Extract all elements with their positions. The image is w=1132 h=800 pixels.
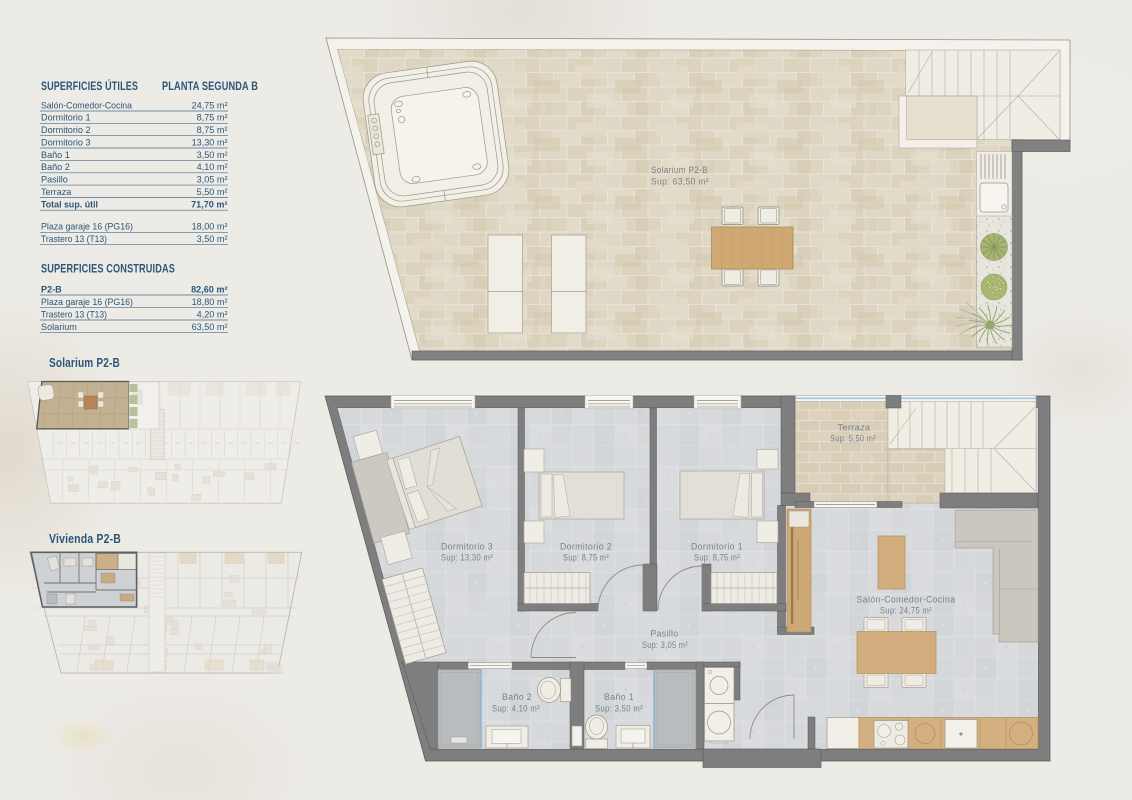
svg-text:Sup: 3,50 m²: Sup: 3,50 m² <box>595 704 643 714</box>
svg-text:4,10 m²: 4,10 m² <box>197 162 228 172</box>
svg-text:Sup: 5,50 m²: Sup: 5,50 m² <box>830 434 876 444</box>
svg-text:Dormitorio 1: Dormitorio 1 <box>691 542 743 552</box>
svg-text:63,50 m²: 63,50 m² <box>192 322 228 332</box>
svg-text:Pasillo: Pasillo <box>41 175 68 185</box>
svg-text:Trastero 13 (T13): Trastero 13 (T13) <box>41 309 107 319</box>
svg-text:Dormitorio 3: Dormitorio 3 <box>41 137 91 147</box>
svg-text:Sup: 63,50 m²: Sup: 63,50 m² <box>651 177 709 187</box>
svg-text:Trastero 13 (T13): Trastero 13 (T13) <box>41 234 107 244</box>
svg-text:Total sup. útil: Total sup. útil <box>41 200 98 210</box>
svg-text:SUPERFICIES CONSTRUIDAS: SUPERFICIES CONSTRUIDAS <box>41 262 175 276</box>
svg-text:18,00 m²: 18,00 m² <box>192 222 228 232</box>
svg-text:18,80 m²: 18,80 m² <box>192 297 228 307</box>
svg-text:71,70 m²: 71,70 m² <box>191 200 227 210</box>
svg-text:P2-B: P2-B <box>41 284 62 294</box>
svg-text:Pasillo: Pasillo <box>651 629 679 639</box>
svg-text:Solarium: Solarium <box>41 322 77 332</box>
svg-text:Sup: 8,75 m²: Sup: 8,75 m² <box>563 553 609 563</box>
svg-text:8,75 m²: 8,75 m² <box>197 113 228 123</box>
svg-text:4,20 m²: 4,20 m² <box>197 309 228 319</box>
svg-text:Baño 1: Baño 1 <box>604 692 634 702</box>
svg-text:Sup: 13,30 m²: Sup: 13,30 m² <box>441 553 493 563</box>
svg-text:Vivienda P2-B: Vivienda P2-B <box>49 532 121 546</box>
svg-text:Solarium P2-B: Solarium P2-B <box>49 356 120 370</box>
svg-text:Sup: 3,05 m²: Sup: 3,05 m² <box>642 640 688 650</box>
svg-text:Dormitorio 1: Dormitorio 1 <box>41 113 91 123</box>
svg-text:Solarium P2-B: Solarium P2-B <box>651 165 708 175</box>
svg-text:Dormitorio 2: Dormitorio 2 <box>560 542 612 552</box>
svg-text:Baño 2: Baño 2 <box>502 692 532 702</box>
svg-text:3,50 m²: 3,50 m² <box>197 150 228 160</box>
svg-text:Plaza garaje 16 (PG16): Plaza garaje 16 (PG16) <box>41 222 133 232</box>
svg-text:24,75 m²: 24,75 m² <box>192 100 228 110</box>
svg-text:Terraza: Terraza <box>838 423 871 433</box>
svg-text:Sup: 8,75 m²: Sup: 8,75 m² <box>694 553 740 563</box>
svg-text:3,05 m²: 3,05 m² <box>197 175 228 185</box>
svg-text:13,30 m²: 13,30 m² <box>192 137 228 147</box>
svg-text:3,50 m²: 3,50 m² <box>197 234 228 244</box>
svg-text:Plaza garaje 16 (PG16): Plaza garaje 16 (PG16) <box>41 297 133 307</box>
svg-text:8,75 m²: 8,75 m² <box>197 125 228 135</box>
svg-text:SUPERFICIES ÚTILES: SUPERFICIES ÚTILES <box>41 78 138 93</box>
svg-text:Terraza: Terraza <box>41 187 72 197</box>
svg-text:Baño 2: Baño 2 <box>41 162 70 172</box>
svg-text:Salón-Comedor-Cocina: Salón-Comedor-Cocina <box>857 595 956 605</box>
svg-text:Salón-Comedor-Cocina: Salón-Comedor-Cocina <box>41 100 133 110</box>
svg-text:82,60 m²: 82,60 m² <box>191 284 227 294</box>
svg-text:PLANTA SEGUNDA B: PLANTA SEGUNDA B <box>162 79 258 93</box>
svg-text:5,50 m²: 5,50 m² <box>197 187 228 197</box>
svg-text:Baño 1: Baño 1 <box>41 150 70 160</box>
svg-text:Sup: 4,10 m²: Sup: 4,10 m² <box>492 704 540 714</box>
svg-text:Sup: 24,75 m²: Sup: 24,75 m² <box>880 606 932 616</box>
svg-text:Dormitorio 3: Dormitorio 3 <box>441 542 493 552</box>
svg-text:Dormitorio 2: Dormitorio 2 <box>41 125 91 135</box>
